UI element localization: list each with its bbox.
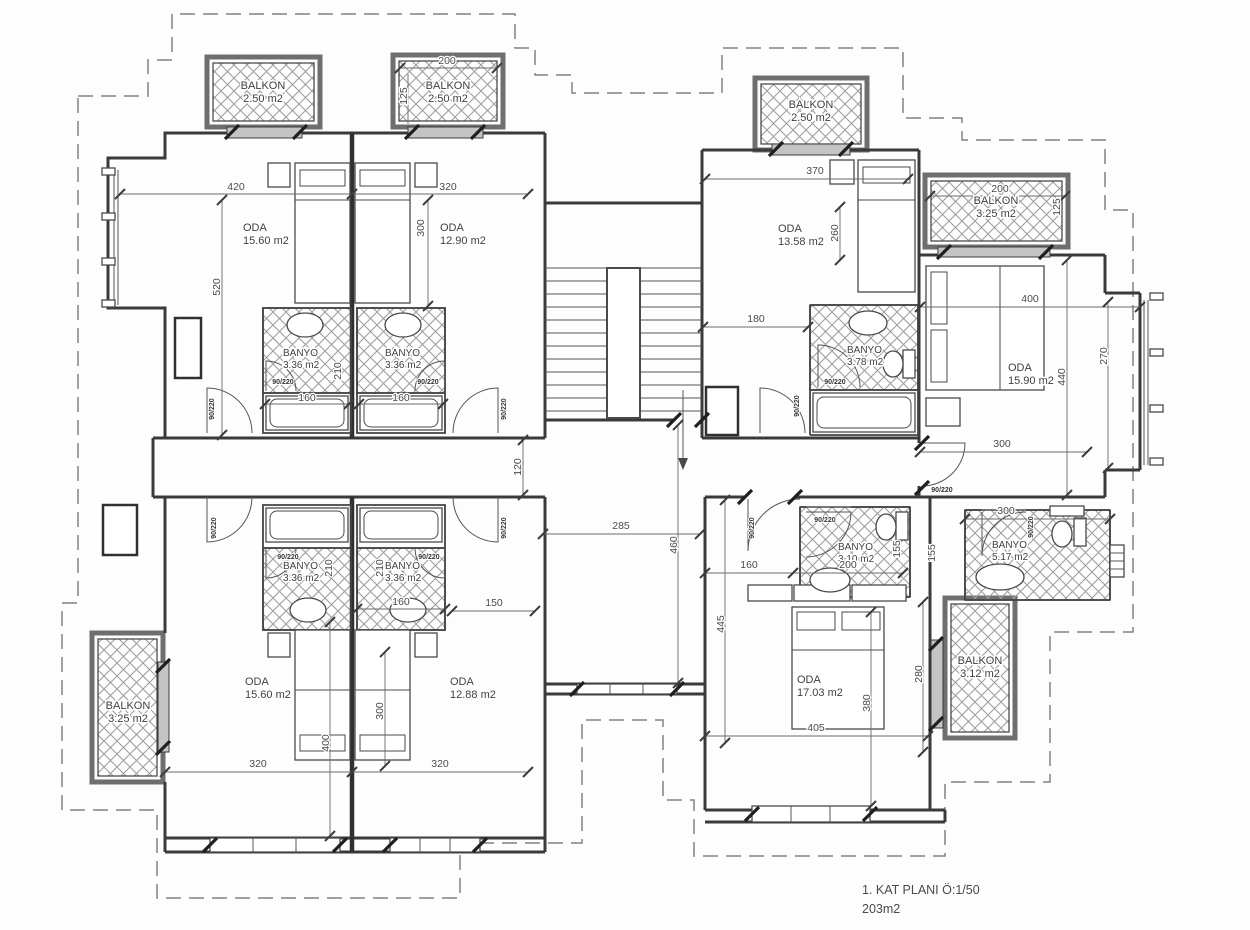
sink: [849, 311, 887, 335]
dim-440: 440: [1056, 368, 1068, 386]
door-size-label: 90/220: [211, 517, 218, 539]
dim-460: 460: [668, 536, 680, 554]
stair-arrow-head: [678, 458, 688, 470]
balcony-door-tr1: [772, 144, 850, 155]
roof-overhang-outline: [62, 14, 1133, 898]
door-arc: [453, 497, 498, 542]
room-area: 12.90 m2: [440, 235, 486, 247]
dim-210: 210: [332, 362, 344, 380]
bed-oda-tl1: [295, 163, 350, 303]
toilet-tank: [1074, 518, 1086, 546]
bay-left-mullion: [102, 213, 115, 220]
room-label: BALKON: [241, 80, 286, 92]
sink: [976, 564, 1024, 590]
window-bottom-left-1: [210, 838, 340, 852]
door-arc: [922, 443, 965, 486]
room-label: BANYO: [385, 561, 420, 572]
dim-380: 380: [861, 694, 873, 712]
dim-300: 300: [993, 438, 1011, 450]
room-label: BALKON: [106, 700, 151, 712]
dim-120: 120: [512, 458, 524, 476]
room-label: BALKON: [958, 655, 1003, 667]
plan-title: 1. KAT PLANI Ö:1/50: [862, 883, 980, 897]
door-size-label: 90/220: [418, 554, 440, 561]
window-bottom-right: [752, 806, 870, 822]
room-area: 5.17 m2: [992, 552, 1029, 563]
room-area: 3.36 m2: [385, 573, 422, 584]
dim-155: 155: [926, 544, 938, 562]
room-label: ODA: [440, 222, 465, 234]
floor-plan-drawing: BALKON 2.50 m2 BALKON 2.50 m2 BALKON 2.5…: [0, 0, 1250, 930]
room-area: 15.90 m2: [1008, 375, 1054, 387]
bay-window-right: [1144, 300, 1148, 465]
room-area: 15.60 m2: [245, 689, 291, 701]
room-area: 3.78 m2: [847, 357, 884, 368]
balcony-door-br: [931, 640, 943, 728]
bay-right-mullion: [1150, 293, 1163, 300]
dresser: [748, 585, 792, 601]
dim-300: 300: [374, 702, 386, 720]
pier-left-top: [175, 318, 201, 378]
sink: [290, 598, 326, 622]
bathtub-bl1: [266, 508, 348, 542]
bay-left-mullion: [102, 168, 115, 175]
dim-200: 200: [438, 55, 456, 67]
door-arc: [453, 388, 498, 433]
bay-right-mullion: [1150, 405, 1163, 412]
nightstand: [830, 160, 854, 184]
room-area: 2.50 m2: [428, 93, 468, 105]
bay-window-left: [114, 170, 118, 305]
room-area: 17.03 m2: [797, 687, 843, 699]
door-size-label: 90/220: [824, 379, 846, 386]
toilet: [876, 514, 896, 540]
toilet: [1052, 521, 1072, 547]
dim-420: 420: [227, 181, 245, 193]
bay-right-mullion: [1150, 458, 1163, 465]
nightstand: [415, 633, 437, 657]
dim-400: 400: [1021, 293, 1039, 305]
balcony-top-left-1-hatch: [213, 63, 314, 121]
door-size-label: 90/220: [749, 517, 756, 539]
door-size-label: 90/220: [209, 398, 216, 420]
room-area: 2.50 m2: [243, 93, 283, 105]
room-label: BANYO: [838, 542, 873, 553]
dim-210: 210: [323, 559, 335, 577]
dim-445: 445: [715, 615, 727, 633]
dim-320: 320: [431, 758, 449, 770]
title-block: 1. KAT PLANI Ö:1/50 203m2: [862, 883, 980, 916]
room-area: 2.50 m2: [791, 112, 831, 124]
dim-270: 270: [1098, 347, 1110, 365]
room-area: 3.12 m2: [960, 668, 1000, 680]
dim-370: 370: [806, 165, 824, 177]
dim-210: 210: [374, 559, 386, 577]
dim-320: 320: [249, 758, 267, 770]
dim-160: 160: [740, 559, 758, 571]
window-bottom-left-2: [390, 838, 480, 852]
room-label: BANYO: [847, 345, 882, 356]
room-area: 13.58 m2: [778, 236, 824, 248]
armchair: [926, 398, 960, 426]
room-area: 3.25 m2: [108, 713, 148, 725]
room-label: BANYO: [283, 348, 318, 359]
bathtub-tr: [813, 393, 915, 432]
toilet: [883, 351, 903, 377]
room-label: ODA: [243, 222, 268, 234]
room-label: BANYO: [992, 540, 1027, 551]
dim-320: 320: [439, 181, 457, 193]
sink: [385, 313, 421, 337]
bay-left-mullion: [102, 300, 115, 307]
toilet-tank: [896, 512, 908, 540]
stair-spine-wall: [607, 268, 640, 418]
dim-125: 125: [398, 87, 410, 105]
room-area: 3.36 m2: [283, 573, 320, 584]
dim-160: 160: [298, 392, 316, 404]
dim-155: 155: [891, 540, 903, 558]
dim-180: 180: [747, 313, 765, 325]
dim-405: 405: [807, 722, 825, 734]
door-size-label: 90/220: [277, 554, 299, 561]
dim-300: 300: [997, 505, 1015, 517]
room-label: ODA: [1008, 362, 1033, 374]
room-area: 3.36 m2: [385, 360, 422, 371]
pier-right: [706, 387, 738, 435]
nightstand: [415, 163, 437, 187]
dim-200: 200: [991, 183, 1009, 195]
floor-plan-sheet: BALKON 2.50 m2 BALKON 2.50 m2 BALKON 2.5…: [0, 0, 1250, 930]
dim-160: 160: [392, 596, 410, 608]
balcony-door-tl1: [227, 127, 302, 138]
window-hall: [577, 684, 677, 694]
bay-left-mullion: [102, 258, 115, 265]
balcony-door-bl: [158, 662, 169, 752]
room-area: 15.60 m2: [243, 235, 289, 247]
room-label: BANYO: [283, 561, 318, 572]
room-label: BALKON: [426, 80, 471, 92]
room-area: 3.36 m2: [283, 360, 320, 371]
room-label: ODA: [450, 676, 475, 688]
dim-200: 200: [839, 559, 857, 571]
dresser: [852, 585, 906, 601]
door-size-label: 90/220: [1028, 516, 1035, 538]
door-size-label: 90/220: [417, 379, 439, 386]
door-size-label: 90/220: [272, 379, 294, 386]
bay-right-mullion: [1150, 349, 1163, 356]
dim-520: 520: [211, 278, 223, 296]
room-area: 12.88 m2: [450, 689, 496, 701]
door-size-label: 90/220: [814, 517, 836, 524]
room-label: BANYO: [385, 348, 420, 359]
nightstand: [268, 163, 290, 187]
counter: [1050, 506, 1084, 516]
bed-oda-tl2: [355, 163, 410, 303]
pier-left-bottom: [103, 505, 137, 555]
balcony-door-tr2: [938, 247, 1050, 257]
door-size-label: 90/220: [501, 517, 508, 539]
nightstand: [268, 633, 290, 657]
dim-400: 400: [320, 734, 332, 752]
dim-160: 160: [392, 392, 410, 404]
dim-285: 285: [612, 520, 630, 532]
dim-260: 260: [829, 224, 841, 242]
door-size-label: 90/220: [931, 487, 953, 494]
dim-280: 280: [913, 665, 925, 683]
dim-125: 125: [1051, 198, 1063, 216]
dim-150: 150: [485, 597, 503, 609]
room-label: BALKON: [974, 195, 1019, 207]
sink: [810, 568, 850, 592]
bathtub-bl2: [360, 508, 442, 542]
bed-oda-bl2: [355, 630, 410, 760]
toilet-tank: [903, 350, 915, 378]
door-size-label: 90/220: [501, 398, 508, 420]
room-label: ODA: [778, 223, 803, 235]
sink: [287, 313, 323, 337]
room-label: ODA: [245, 676, 270, 688]
room-label: ODA: [797, 674, 822, 686]
door-size-label: 90/220: [794, 395, 801, 417]
room-label: BALKON: [789, 99, 834, 111]
room-area: 3.25 m2: [976, 208, 1016, 220]
dim-300: 300: [415, 219, 427, 237]
plan-area: 203m2: [862, 902, 900, 916]
